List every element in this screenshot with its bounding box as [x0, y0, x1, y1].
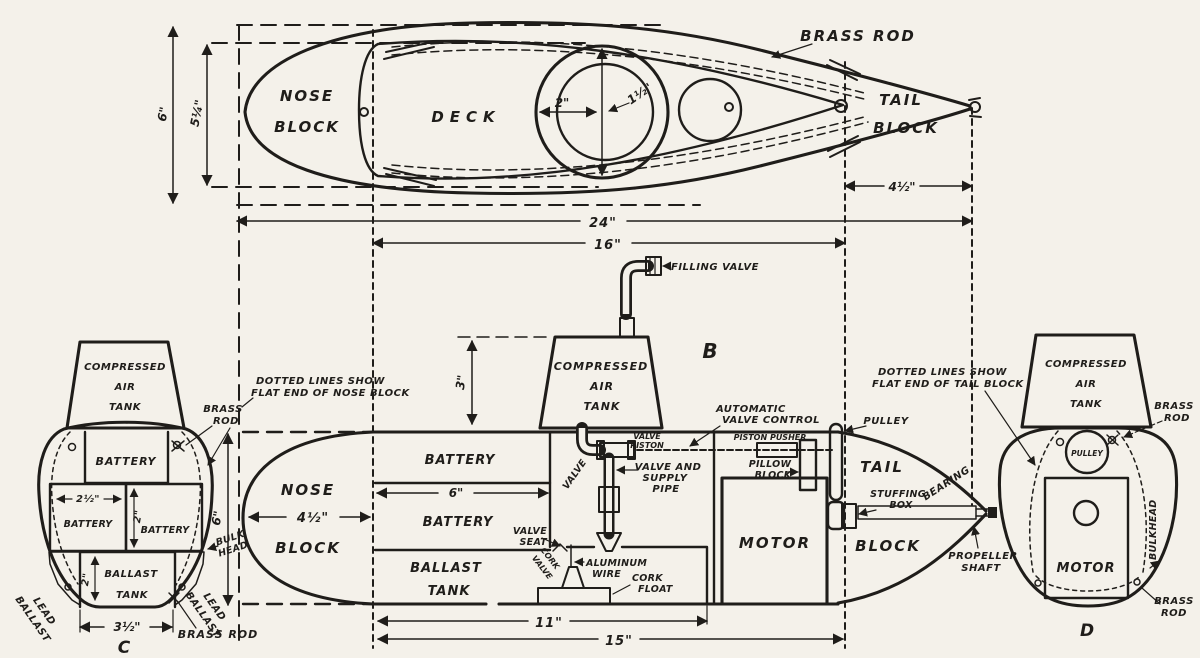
dim-battery-width-c: 2½": [76, 493, 100, 505]
tail-eye: [969, 98, 981, 117]
air-tank-c-label: COMPRESSED: [84, 362, 166, 373]
valve-supply-label: PIPE: [652, 484, 679, 495]
propeller-shaft-label: SHAFT: [961, 563, 1001, 574]
pulley-label: PULLEY: [863, 416, 910, 427]
dim-deck: 16": [594, 238, 622, 253]
section-c-label: C: [118, 638, 131, 658]
air-tank-b-label: AIR: [589, 380, 614, 393]
side-view: FILLING VALVE B DOTTED LINES SHOW FLAT E…: [242, 257, 1035, 649]
air-tank-d-label: AIR: [1075, 379, 1097, 390]
filling-valve-label: FILLING VALVE: [671, 262, 759, 273]
dim-ballast: 11": [535, 616, 563, 631]
brass-rod-c-top-label: ROD: [213, 416, 239, 427]
dim-tail: 4½": [887, 180, 915, 194]
cork-float-label: CORK: [632, 573, 663, 584]
view-b-label: B: [702, 339, 717, 363]
conning-tower: [536, 46, 668, 178]
bearing-label: BEARING: [921, 465, 972, 503]
air-tank-c-label: AIR: [114, 382, 136, 393]
brass-rod-d-bottom-label: ROD: [1161, 608, 1187, 619]
valve-piston-label: PISTON: [630, 441, 664, 450]
dim-height-inner: 5¼": [187, 98, 206, 127]
air-tank-b-label: COMPRESSED: [554, 360, 649, 373]
auto-valve-control-label: AUTOMATIC: [715, 404, 786, 415]
brass-rod-c-top-label: BRASS: [203, 404, 243, 415]
ballast-tank-label: TANK: [428, 584, 471, 599]
brass-rod-d-bottom-label: BRASS: [1154, 596, 1194, 607]
motor-d-box: [1045, 478, 1128, 598]
aluminum-wire-label: ALUMINUM: [585, 558, 647, 569]
nose-block-side-label: NOSE: [281, 481, 335, 499]
motor-d-shaft: [1074, 501, 1098, 525]
stuffing-box-label: BOX: [889, 500, 913, 511]
brass-rod-d-top-label: BRASS: [1154, 401, 1194, 412]
propeller-shaft-assembly: [842, 504, 997, 528]
section-c: 6" COMPRESSED AIR TANK BATTERY 2½" BATTE…: [13, 342, 259, 658]
pillow-block-label: PILLOW: [749, 459, 792, 470]
battery-lower-label: BATTERY: [423, 515, 494, 530]
aft-hatch-hole: [725, 103, 733, 111]
dim-nose: 4½": [296, 511, 329, 526]
valve-label: VALVE: [561, 457, 590, 491]
stuffing-box-label: STUFFING: [870, 489, 926, 500]
dim-tower-inner: 1½": [625, 80, 655, 107]
ballast-tank-label: BALLAST: [410, 561, 482, 576]
bulkhead-d-label: BULKHEAD: [1148, 500, 1159, 560]
dim-tower-outer: 2": [555, 96, 570, 110]
filling-valve: [620, 257, 668, 337]
blueprint-page: 6" 5¼" NOSE BLOCK DECK 2" 1½" BRASS ROD …: [0, 0, 1200, 658]
battery-left-c-label: BATTERY: [64, 519, 114, 530]
ballast-tank-c-label: BALLAST: [104, 569, 158, 580]
air-tank-d-label: TANK: [1070, 399, 1103, 410]
ballast-tank-c-label: TANK: [116, 590, 149, 601]
tail-block-label: BLOCK: [873, 119, 939, 137]
battery-upper-label: BATTERY: [425, 453, 496, 468]
dim-battery: 6": [449, 486, 464, 500]
tail-block-label: TAIL: [879, 91, 923, 109]
nose-block-label: BLOCK: [274, 118, 340, 136]
dim-width-c-label: 3½": [113, 620, 140, 634]
tail-block-side-label: TAIL: [860, 458, 904, 476]
brass-rod-d-top-label: ROD: [1164, 413, 1190, 424]
tail-block-side-label: BLOCK: [855, 537, 921, 555]
valve-supply-label: VALVE AND: [635, 462, 702, 473]
note-tail: DOTTED LINES SHOW: [878, 367, 1007, 378]
section-d-label: D: [1080, 621, 1094, 641]
valve-supply-label: SUPPLY: [642, 473, 688, 484]
hull-plan-outline: [245, 22, 970, 193]
brass-rod-title: BRASS ROD: [800, 27, 916, 45]
dim-tank-height: 3": [453, 374, 469, 391]
dim-keel: 15": [605, 634, 633, 649]
nose-block-label: NOSE: [280, 87, 334, 105]
valve-piston-label: VALVE: [633, 432, 661, 441]
deck-label: DECK: [431, 108, 500, 126]
dim-ballast-height-c: 2": [80, 572, 93, 587]
valve-assembly: [538, 428, 833, 604]
section-d: COMPRESSED AIR TANK PULLEY MOTOR BRASS R…: [999, 335, 1193, 641]
valve-seat-label: VALVE: [513, 526, 547, 537]
brass-rod-c-bottom-label: BRASS ROD: [178, 628, 259, 641]
nose-block-side-label: BLOCK: [275, 539, 341, 557]
battery-right-c-label: BATTERY: [141, 525, 191, 536]
deck-fore-hole: [360, 108, 368, 116]
note-tail: FLAT END OF TAIL BLOCK: [872, 379, 1024, 390]
submarine-plan-drawing: 6" 5¼" NOSE BLOCK DECK 2" 1½" BRASS ROD …: [0, 0, 1200, 658]
piston-pusher-label: PISTON PUSHER: [734, 433, 807, 442]
note-nose: FLAT END OF NOSE BLOCK: [251, 388, 410, 399]
battery-top-c-label: BATTERY: [95, 455, 156, 468]
dim-battery-height-c: 2": [132, 509, 145, 524]
motor-label: MOTOR: [739, 534, 811, 552]
pulley-d-label: PULLEY: [1071, 449, 1104, 458]
auto-valve-control-label: VALVE CONTROL: [722, 415, 820, 426]
aluminum-wire-label: WIRE: [592, 569, 621, 580]
hull-d-dashed: [1117, 431, 1146, 572]
pillow-block: [800, 440, 816, 490]
air-tank-d-label: COMPRESSED: [1045, 359, 1127, 370]
hull-d-dashed: [1036, 576, 1140, 591]
dim-overall: 24": [589, 216, 617, 231]
motor-d-label: MOTOR: [1057, 561, 1116, 576]
air-tank-b-label: TANK: [584, 400, 621, 413]
cork-float-label: FLOAT: [638, 584, 674, 595]
air-tank-c-label: TANK: [109, 402, 142, 413]
propeller-shaft-label: PROPELLER: [948, 551, 1017, 562]
note-nose: DOTTED LINES SHOW: [256, 376, 385, 387]
dim-height-outer: 6": [155, 106, 172, 123]
